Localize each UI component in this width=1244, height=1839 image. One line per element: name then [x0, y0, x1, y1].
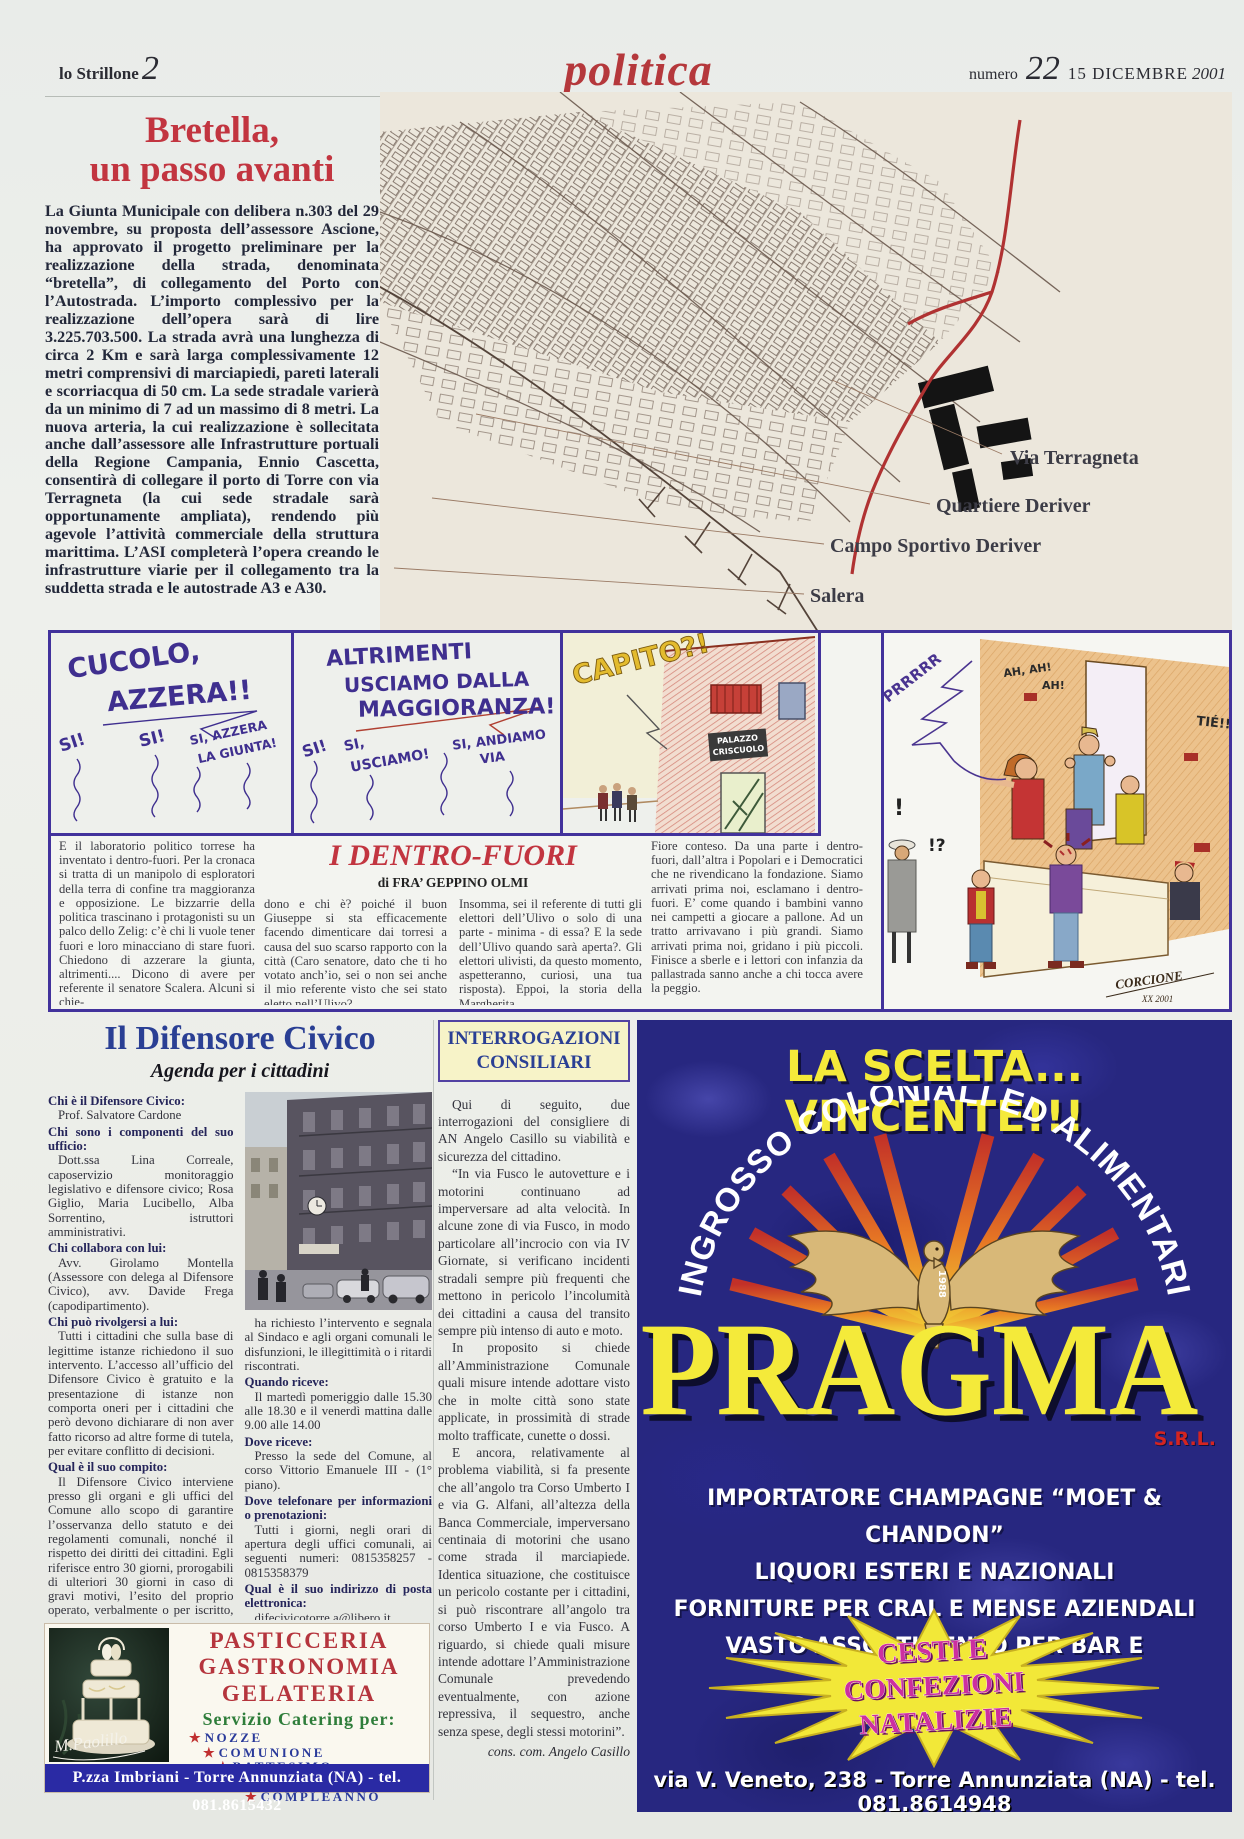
question: Chi collabora con lui:	[48, 1241, 234, 1255]
paragraph: Qui di seguito, due interrogazioni del c…	[438, 1096, 630, 1166]
df-column-2: dono e chi è? poiché il buon Giuseppe si…	[264, 897, 447, 1005]
comic-shout: MAGGIORANZA!	[358, 694, 556, 722]
mark-intbang: !?	[928, 836, 946, 856]
df-byline: di FRA’ GEPPINO OLMI	[264, 875, 642, 891]
balcony	[711, 685, 761, 713]
ad-line: LIQUORI ESTERI E NAZIONALI	[646, 1554, 1223, 1591]
answer: difecivicotorre.a@libero.it	[245, 1611, 433, 1620]
ad-heading: GASTRONOMIA	[173, 1654, 425, 1680]
difensore-subtitle: Agenda per i cittadini	[48, 1060, 432, 1083]
pragma-ad: LA SCELTA... VINCENTE!!!	[637, 1020, 1232, 1812]
df-column-4: Fiore conteso. Da una parte i dentro-fuo…	[651, 839, 863, 1005]
paragraph: In proposito si chiede all’Amministrazio…	[438, 1339, 630, 1444]
answer: Avv. Girolamo Montella (Assessore con de…	[48, 1256, 234, 1313]
comic-panel-4-art: PRRRRR AH, AH! AH! TIÉ!! ! !?	[884, 633, 1229, 1006]
issue-info: numero 22 15 DICEMBRE 2001	[969, 50, 1226, 88]
df-column-1: E il laboratorio politico torrese ha inv…	[59, 839, 255, 1005]
sound-ah2: AH!	[1042, 679, 1065, 692]
answer: Presso la sede del Comune, al corso Vitt…	[245, 1449, 433, 1492]
question: Chi è il Difensore Civico:	[48, 1094, 234, 1108]
comic-reply: VIA	[479, 750, 506, 768]
ad-address: via V. Veneto, 238 - Torre Annunziata (N…	[637, 1768, 1232, 1812]
comic-panel-1: CUCOLO, AZZERA!! SI! SI! SI, AZZERA LA G…	[51, 633, 294, 836]
ad-heading: GELATERIA	[173, 1681, 425, 1707]
mark-bang: !	[894, 796, 904, 821]
df-title: I DENTRO-FUORI	[264, 841, 642, 871]
pasticceria-ad: M.Paolillo PASTICCERIA GASTRONOMIA GELAT…	[44, 1623, 430, 1793]
sound-prr: PRRRRR	[884, 649, 945, 706]
article-title-line2: un passo avanti	[45, 151, 379, 190]
answer: ha richiesto l’intervento e segnala al S…	[245, 1316, 433, 1373]
starburst: CESTI E CESTI E CONFEZIONI CONFEZIONI NA…	[704, 1598, 1164, 1778]
artist-signature-year: XX 2001	[1141, 994, 1173, 1004]
question: Chi può rivolgersi a lui:	[48, 1315, 234, 1329]
small-figures	[598, 783, 637, 822]
difensore-column-left: Chi è il Difensore Civico: Prof. Salvato…	[48, 1092, 234, 1620]
interrogazioni-column: INTERROGAZIONI CONSILIARI Qui di seguito…	[438, 1020, 630, 1760]
article-difensore-civico: Il Difensore Civico Agenda per i cittadi…	[48, 1022, 432, 1620]
paragraph: E ancora, relativamente al problema viab…	[438, 1444, 630, 1740]
artist-signature: CORCIONE	[1114, 968, 1184, 992]
map-label-quartiere-deriver: Quartiere Deriver	[936, 495, 1091, 517]
issue-date: 15 DICEMBRE	[1068, 64, 1188, 83]
map-label-salera: Salera	[810, 585, 864, 607]
question: Qual è il suo compito:	[48, 1460, 234, 1474]
answer: Il martedì pomeriggio dalle 15.30 alle 1…	[245, 1390, 433, 1433]
comic-panel-3: PALAZZO CRISCUOLO CAPITO?!	[563, 633, 821, 836]
newspaper-page: lo Strillone2 politica numero 22 15 DICE…	[0, 0, 1244, 1839]
city-map: Via Terragneta Quartiere Deriver Campo S…	[380, 92, 1232, 635]
comic-panel-4: PRRRRR AH, AH! AH! TIÉ!! ! !?	[881, 633, 1229, 1009]
difensore-title: Il Difensore Civico	[48, 1022, 432, 1056]
issue-number: 22	[1026, 50, 1060, 87]
masthead: lo Strillone2 politica numero 22 15 DICE…	[45, 38, 1232, 90]
answer: Il Difensore Civico interviene presso gl…	[48, 1475, 234, 1620]
question: Dove riceve:	[245, 1435, 433, 1449]
df-middle: I DENTRO-FUORI di FRA’ GEPPINO OLMI dono…	[264, 839, 642, 1005]
answer: Tutti i cittadini che sulla base di legi…	[48, 1329, 234, 1458]
difensore-column-right: ha richiesto l’intervento e segnala al S…	[245, 1092, 433, 1620]
cake-photo: M.Paolillo	[49, 1628, 169, 1762]
ad-heading: PASTICCERIA	[173, 1628, 425, 1654]
question: Quando riceve:	[245, 1375, 433, 1389]
question: Chi sono i componenti del suo ufficio:	[48, 1125, 234, 1154]
star-icon: ★	[189, 1730, 201, 1745]
question: Qual è il suo indirizzo di posta elettro…	[245, 1582, 433, 1611]
article-title: Bretella, un passo avanti	[45, 112, 379, 190]
street-photo	[245, 1092, 432, 1310]
window	[779, 683, 805, 719]
brand-name: PRAGMA	[637, 1303, 1202, 1437]
column-rule	[433, 1020, 434, 1800]
article-dentro-fuori: E il laboratorio politico torrese ha inv…	[59, 839, 877, 1005]
df-column-3: Insomma, sei il referente di tutti gli e…	[459, 897, 642, 1005]
answer: Prof. Salvatore Cardone	[48, 1108, 234, 1122]
issue-year: 2001	[1192, 64, 1226, 83]
answer: Tutti i giorni, negli orari di apertura …	[245, 1523, 433, 1580]
catering-label: Servizio Catering per:	[173, 1709, 425, 1730]
answer: Dott.ssa Lina Correale, caposervizio mon…	[48, 1153, 234, 1239]
issue-label: numero	[969, 66, 1018, 83]
service-label: NOZZE	[205, 1730, 263, 1745]
service-item: ★COMUNIONE	[203, 1746, 425, 1761]
paragraph: “In via Fusco le autovetture e i motorin…	[438, 1165, 630, 1339]
question: Dove telefonare per informazioni o preno…	[245, 1494, 433, 1523]
article-bretella: Bretella, un passo avanti La Giunta Muni…	[45, 106, 379, 597]
star-icon: ★	[203, 1745, 215, 1760]
ad-address-bar: P.zza Imbriani - Torre Annunziata (NA) -…	[45, 1764, 429, 1792]
eagle-year: 1988	[936, 1270, 947, 1298]
comic-panel-2: ALTRIMENTI USCIAMO DALLA MAGGIORANZA! SI…	[294, 633, 563, 836]
article-body: La Giunta Municipale con delibera n.303 …	[45, 202, 379, 598]
interrogazioni-header: INTERROGAZIONI CONSILIARI	[438, 1020, 630, 1082]
service-label: COMUNIONE	[219, 1745, 325, 1760]
comic-panel-3-art: PALAZZO CRISCUOLO CAPITO?!	[563, 633, 818, 833]
burst-line1: CESTI E	[876, 1633, 987, 1670]
brand-suffix: S.R.L.	[1154, 1428, 1216, 1450]
comic-strip-box: CUCOLO, AZZERA!! SI! SI! SI, AZZERA LA G…	[48, 630, 1232, 1012]
map-label-via-terragneta: Via Terragneta	[1010, 447, 1139, 469]
interrogazioni-signature: cons. com. Angelo Casillo	[438, 1744, 630, 1760]
ad-line: IMPORTATORE CHAMPAGNE “MOET & CHANDON”	[646, 1480, 1223, 1554]
article-title-line1: Bretella,	[45, 112, 379, 151]
service-item: ★NOZZE	[189, 1731, 425, 1746]
map-label-campo-sportivo: Campo Sportivo Deriver	[830, 535, 1041, 557]
